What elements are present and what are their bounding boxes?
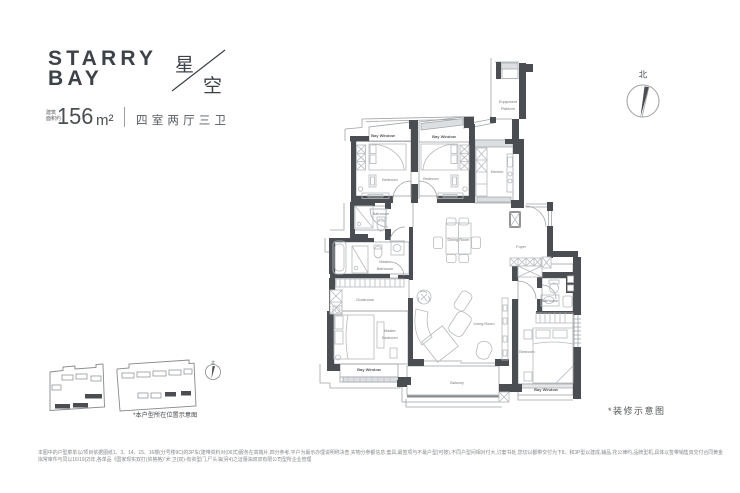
svg-text:Platform: Platform — [501, 107, 515, 111]
svg-text:Bathroom: Bathroom — [373, 212, 389, 216]
svg-text:北: 北 — [639, 70, 648, 80]
svg-text:Bedroom: Bedroom — [382, 336, 397, 340]
svg-text:Kitchen: Kitchen — [491, 170, 504, 174]
svg-text:北: 北 — [211, 359, 215, 365]
svg-text:Bay Window: Bay Window — [534, 387, 559, 392]
svg-text:Balcony: Balcony — [450, 381, 464, 385]
svg-text:Master: Master — [379, 260, 391, 264]
svg-text:Bedroom: Bedroom — [423, 177, 438, 181]
svg-text:Foyer: Foyer — [516, 245, 526, 249]
svg-text:Bedroom: Bedroom — [519, 350, 534, 354]
svg-text:Bathroom: Bathroom — [377, 267, 393, 271]
svg-text:Bathroom: Bathroom — [542, 299, 558, 303]
svg-text:Dining Room: Dining Room — [448, 238, 470, 242]
svg-text:Bedroom: Bedroom — [382, 178, 397, 182]
svg-text:Living Room: Living Room — [473, 322, 494, 326]
svg-text:Bay Window: Bay Window — [371, 133, 396, 138]
svg-text:Bay Window: Bay Window — [357, 367, 382, 372]
svg-text:Cloakroom: Cloakroom — [356, 298, 374, 302]
svg-text:Bay Window: Bay Window — [432, 134, 457, 139]
svg-text:Equipment: Equipment — [499, 100, 518, 104]
svg-text:Master: Master — [384, 329, 396, 333]
